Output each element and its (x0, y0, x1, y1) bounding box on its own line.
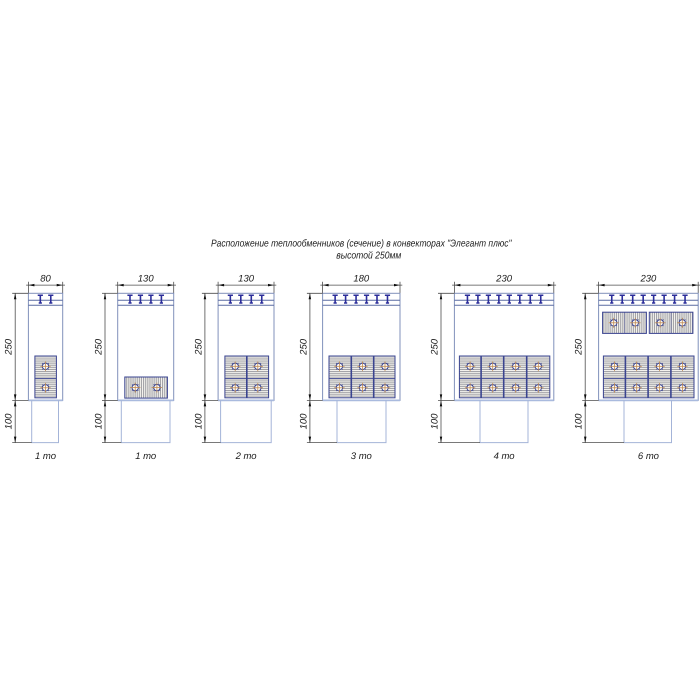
svg-text:100: 100 (193, 413, 204, 430)
svg-text:180: 180 (353, 274, 370, 285)
svg-text:2 то: 2 то (235, 451, 257, 462)
svg-text:6 то: 6 то (638, 451, 659, 462)
svg-text:100: 100 (298, 413, 309, 430)
svg-text:1 то: 1 то (135, 451, 156, 462)
svg-text:высотой 250мм: высотой 250мм (336, 251, 401, 262)
svg-text:1 то: 1 то (35, 451, 56, 462)
svg-text:130: 130 (138, 274, 155, 285)
svg-text:250: 250 (4, 338, 15, 356)
svg-text:Расположение теплообменников (: Расположение теплообменников (сечение) в… (211, 238, 512, 249)
svg-text:100: 100 (93, 413, 104, 430)
svg-text:250: 250 (298, 338, 309, 356)
svg-text:250: 250 (429, 338, 440, 356)
svg-text:4 то: 4 то (494, 451, 515, 462)
svg-text:100: 100 (429, 413, 440, 430)
svg-text:80: 80 (40, 274, 51, 285)
svg-text:100: 100 (574, 413, 585, 430)
svg-text:250: 250 (193, 338, 204, 356)
svg-text:130: 130 (238, 274, 255, 285)
svg-text:250: 250 (574, 338, 585, 356)
svg-text:230: 230 (639, 274, 657, 285)
svg-text:230: 230 (495, 274, 513, 285)
svg-text:3 то: 3 то (351, 451, 372, 462)
svg-text:100: 100 (4, 413, 15, 430)
svg-text:250: 250 (93, 338, 104, 356)
